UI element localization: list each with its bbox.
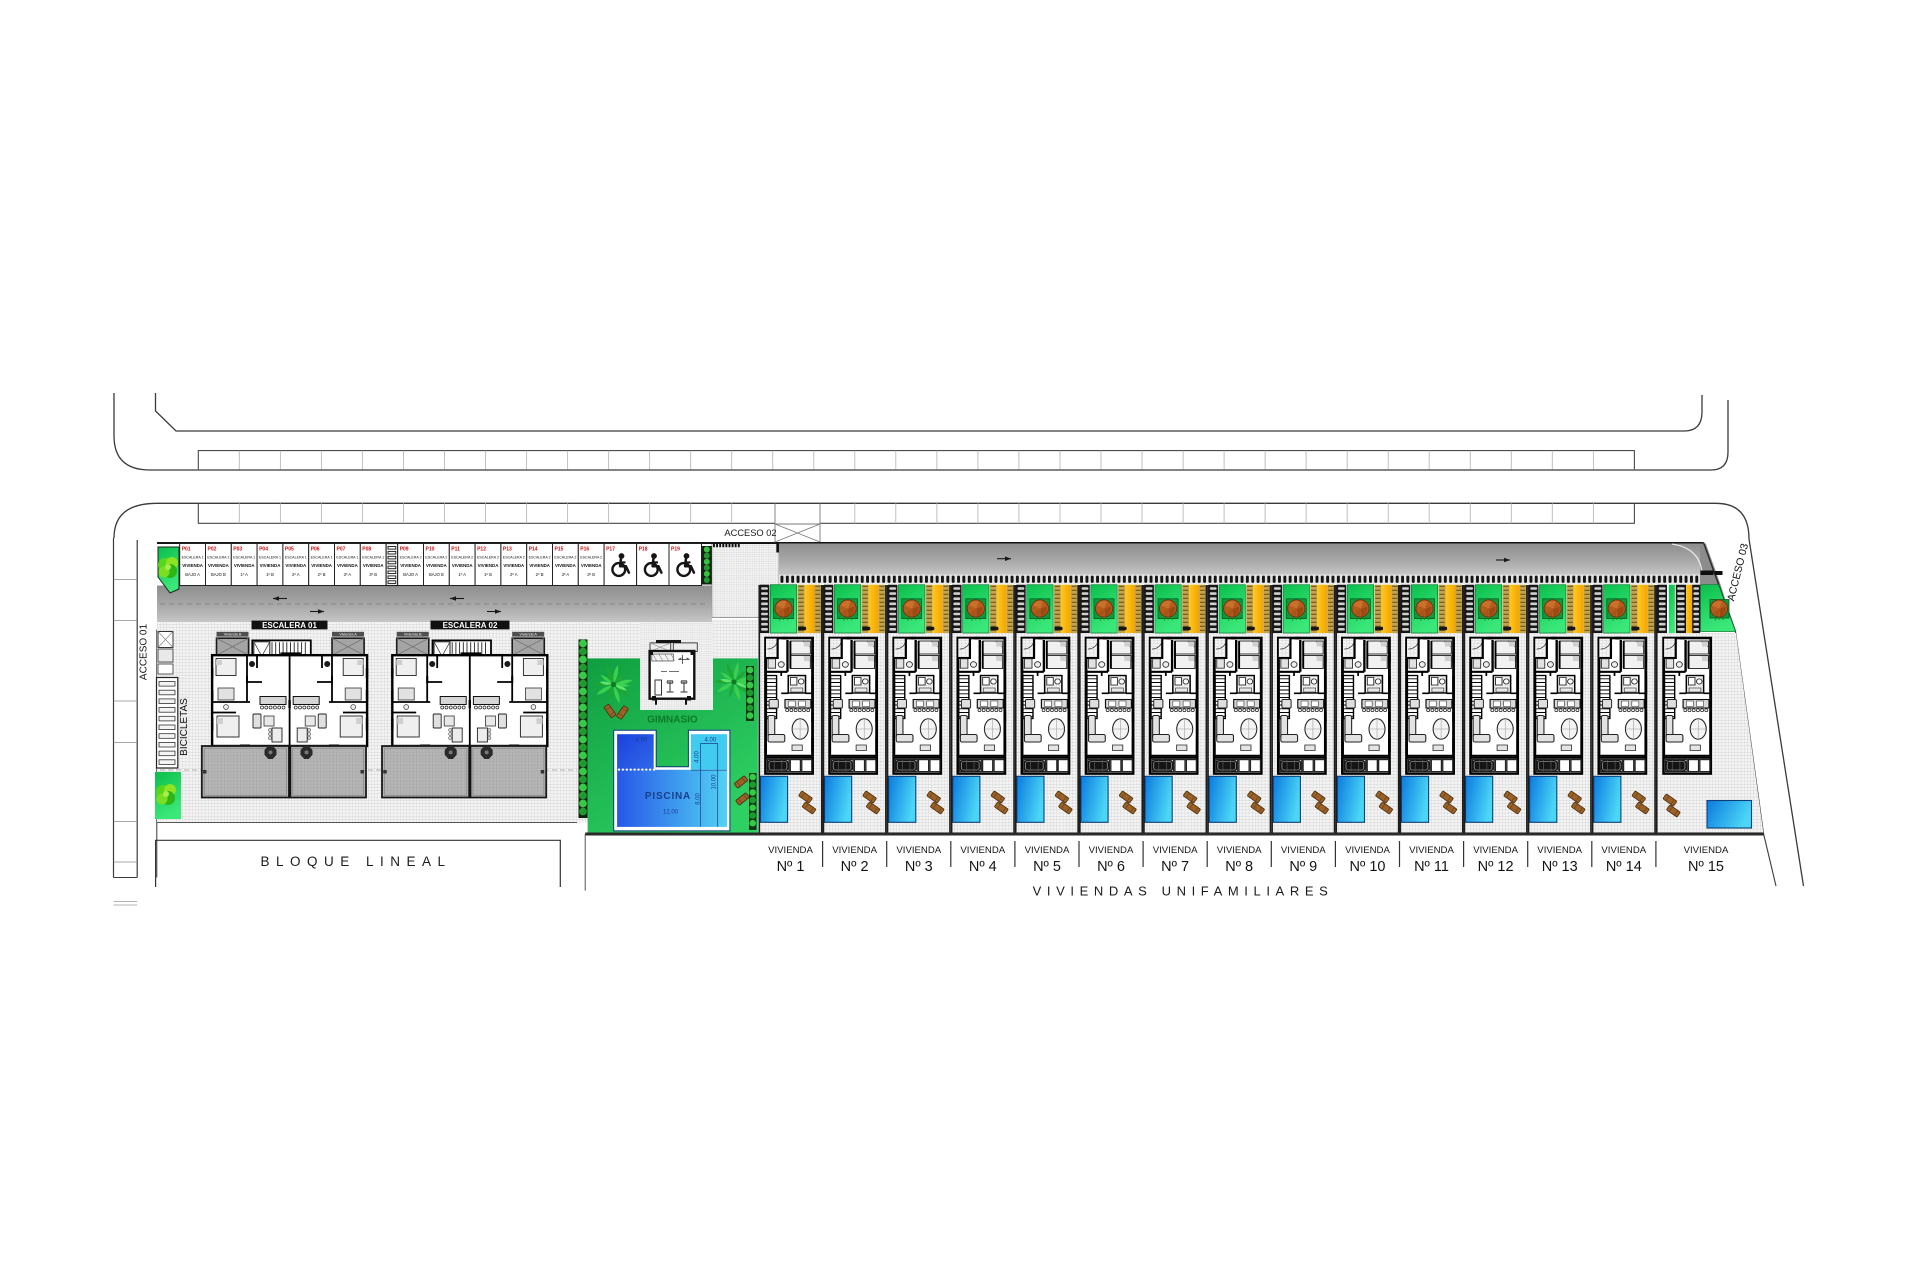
svg-text:ESCALERA 1: ESCALERA 1 xyxy=(311,556,333,560)
svg-text:P12: P12 xyxy=(477,547,486,553)
svg-text:P02: P02 xyxy=(208,547,217,553)
svg-text:P18: P18 xyxy=(639,547,648,553)
svg-text:P15: P15 xyxy=(555,547,564,553)
svg-text:Nº 3: Nº 3 xyxy=(905,859,933,875)
svg-text:P10: P10 xyxy=(426,547,435,553)
svg-text:3º B: 3º B xyxy=(587,572,595,577)
svg-text:P09: P09 xyxy=(400,547,409,553)
svg-text:VIVIENDA: VIVIENDA xyxy=(529,563,551,568)
svg-text:VIVIENDA: VIVIENDA xyxy=(182,563,204,568)
svg-text:1º B: 1º B xyxy=(484,572,492,577)
svg-text:VIVIENDA: VIVIENDA xyxy=(363,563,385,568)
svg-text:VIVIENDA: VIVIENDA xyxy=(581,563,603,568)
svg-text:ESCALERA 1: ESCALERA 1 xyxy=(285,556,307,560)
svg-text:GIMNASIO: GIMNASIO xyxy=(647,715,698,726)
svg-text:BICICLETAS: BICICLETAS xyxy=(179,698,190,756)
svg-text:VIVIENDA: VIVIENDA xyxy=(1537,845,1582,856)
svg-text:ESCALERA 02: ESCALERA 02 xyxy=(443,621,498,630)
svg-text:Nº 10: Nº 10 xyxy=(1350,859,1386,875)
svg-text:Nº 13: Nº 13 xyxy=(1542,859,1578,875)
svg-text:VIVIENDA: VIVIENDA xyxy=(478,563,500,568)
svg-text:VIVIENDA: VIVIENDA xyxy=(1684,845,1729,856)
svg-text:P05: P05 xyxy=(285,547,294,553)
svg-text:P08: P08 xyxy=(362,547,371,553)
svg-text:Nº 1: Nº 1 xyxy=(777,859,805,875)
svg-text:Nº 9: Nº 9 xyxy=(1289,859,1317,875)
svg-text:VIVIENDA: VIVIENDA xyxy=(426,563,448,568)
svg-text:ESCALERA 2: ESCALERA 2 xyxy=(554,556,576,560)
svg-text:VIVIENDA: VIVIENDA xyxy=(234,563,256,568)
svg-text:VIVIENDA: VIVIENDA xyxy=(1025,845,1070,856)
svg-text:1º B: 1º B xyxy=(266,572,274,577)
svg-text:BLOQUE LINEAL: BLOQUE LINEAL xyxy=(260,854,451,869)
svg-text:Vivienda A: Vivienda A xyxy=(520,633,538,637)
svg-text:3º A: 3º A xyxy=(344,572,352,577)
svg-text:VIVIENDA: VIVIENDA xyxy=(1345,845,1390,856)
svg-text:BAJO B: BAJO B xyxy=(429,572,444,577)
svg-text:Vivienda A: Vivienda A xyxy=(339,633,357,637)
svg-text:P06: P06 xyxy=(311,547,320,553)
svg-text:VIVIENDA: VIVIENDA xyxy=(208,563,230,568)
svg-text:ACCESO 01: ACCESO 01 xyxy=(139,623,150,680)
svg-text:VIVIENDA: VIVIENDA xyxy=(1089,845,1134,856)
svg-text:Vivienda B: Vivienda B xyxy=(404,633,422,637)
svg-text:BAJO B: BAJO B xyxy=(211,572,226,577)
svg-text:VIVIENDA: VIVIENDA xyxy=(400,563,422,568)
svg-text:VIVIENDA: VIVIENDA xyxy=(1153,845,1198,856)
svg-text:ESCALERA 2: ESCALERA 2 xyxy=(529,556,551,560)
svg-text:BAJO A: BAJO A xyxy=(403,572,418,577)
svg-text:Nº 11: Nº 11 xyxy=(1414,859,1449,875)
svg-text:VIVIENDA: VIVIENDA xyxy=(555,563,577,568)
svg-text:ESCALERA 2: ESCALERA 2 xyxy=(477,556,499,560)
svg-text:VIVIENDA: VIVIENDA xyxy=(896,845,941,856)
svg-text:VIVIENDA: VIVIENDA xyxy=(1281,845,1326,856)
svg-text:Nº 2: Nº 2 xyxy=(841,859,869,875)
svg-text:P19: P19 xyxy=(671,547,680,553)
svg-text:P17: P17 xyxy=(606,547,615,553)
svg-text:Nº 12: Nº 12 xyxy=(1478,859,1514,875)
svg-text:ESCALERA 1: ESCALERA 1 xyxy=(336,556,358,560)
svg-text:BAJO A: BAJO A xyxy=(185,572,200,577)
svg-text:VIVIENDA: VIVIENDA xyxy=(260,563,282,568)
svg-text:ESCALERA 1: ESCALERA 1 xyxy=(182,556,204,560)
svg-text:3º B: 3º B xyxy=(369,572,377,577)
svg-text:Nº 8: Nº 8 xyxy=(1225,859,1253,875)
svg-text:4.00: 4.00 xyxy=(695,751,701,763)
svg-text:ESCALERA 2: ESCALERA 2 xyxy=(400,556,422,560)
svg-text:2º A: 2º A xyxy=(510,572,518,577)
svg-text:1º A: 1º A xyxy=(458,572,466,577)
svg-text:ESCALERA 2: ESCALERA 2 xyxy=(451,556,473,560)
svg-text:2º A: 2º A xyxy=(292,572,300,577)
svg-text:ESCALERA 1: ESCALERA 1 xyxy=(207,556,229,560)
svg-text:P13: P13 xyxy=(503,547,512,553)
svg-text:P07: P07 xyxy=(337,547,346,553)
svg-text:ESCALERA 01: ESCALERA 01 xyxy=(262,621,317,630)
svg-text:P16: P16 xyxy=(580,547,589,553)
svg-text:VIVIENDA: VIVIENDA xyxy=(1217,845,1262,856)
svg-text:ACCESO 02: ACCESO 02 xyxy=(724,528,776,538)
svg-text:VIVIENDA: VIVIENDA xyxy=(1601,845,1646,856)
svg-text:VIVIENDA: VIVIENDA xyxy=(832,845,877,856)
svg-text:VIVIENDA: VIVIENDA xyxy=(768,845,813,856)
svg-text:Nº 15: Nº 15 xyxy=(1688,859,1724,875)
svg-text:ESCALERA 1: ESCALERA 1 xyxy=(362,556,384,560)
svg-text:P01: P01 xyxy=(182,547,191,553)
svg-text:VIVIENDAS UNIFAMILIARES: VIVIENDAS UNIFAMILIARES xyxy=(1033,884,1334,899)
svg-text:VIVIENDA: VIVIENDA xyxy=(960,845,1005,856)
svg-text:PISCINA: PISCINA xyxy=(645,791,691,802)
svg-text:VIVIENDA: VIVIENDA xyxy=(1473,845,1518,856)
svg-text:P04: P04 xyxy=(259,547,268,553)
svg-text:Nº 7: Nº 7 xyxy=(1161,859,1189,875)
svg-text:3º A: 3º A xyxy=(562,572,570,577)
svg-text:VIVIENDA: VIVIENDA xyxy=(503,563,525,568)
svg-text:P14: P14 xyxy=(529,547,538,553)
svg-text:VIVIENDA: VIVIENDA xyxy=(311,563,333,568)
svg-text:VIVIENDA: VIVIENDA xyxy=(285,563,307,568)
svg-text:2º B: 2º B xyxy=(536,572,544,577)
svg-text:VIVIENDA: VIVIENDA xyxy=(452,563,474,568)
svg-text:2º B: 2º B xyxy=(318,572,326,577)
svg-text:Nº 14: Nº 14 xyxy=(1606,859,1642,875)
svg-text:Vivienda B: Vivienda B xyxy=(224,633,242,637)
svg-text:VIVIENDA: VIVIENDA xyxy=(337,563,359,568)
svg-text:ESCALERA 2: ESCALERA 2 xyxy=(503,556,525,560)
svg-text:12.00: 12.00 xyxy=(663,810,679,816)
svg-text:ESCALERA 1: ESCALERA 1 xyxy=(259,556,281,560)
svg-text:1º A: 1º A xyxy=(240,572,248,577)
svg-text:4.00: 4.00 xyxy=(705,738,717,744)
svg-text:P03: P03 xyxy=(233,547,242,553)
svg-text:10.00: 10.00 xyxy=(712,774,718,790)
svg-text:VIVIENDA: VIVIENDA xyxy=(1409,845,1454,856)
svg-text:ESCALERA 2: ESCALERA 2 xyxy=(425,556,447,560)
svg-text:ESCALERA 2: ESCALERA 2 xyxy=(580,556,602,560)
svg-text:Nº 4: Nº 4 xyxy=(969,859,997,875)
svg-text:Nº 5: Nº 5 xyxy=(1033,859,1061,875)
svg-text:P11: P11 xyxy=(451,547,460,553)
svg-text:Nº 6: Nº 6 xyxy=(1097,859,1125,875)
svg-text:ESCALERA 1: ESCALERA 1 xyxy=(233,556,255,560)
svg-text:4.00: 4.00 xyxy=(636,738,648,744)
svg-text:8.00: 8.00 xyxy=(696,793,702,805)
